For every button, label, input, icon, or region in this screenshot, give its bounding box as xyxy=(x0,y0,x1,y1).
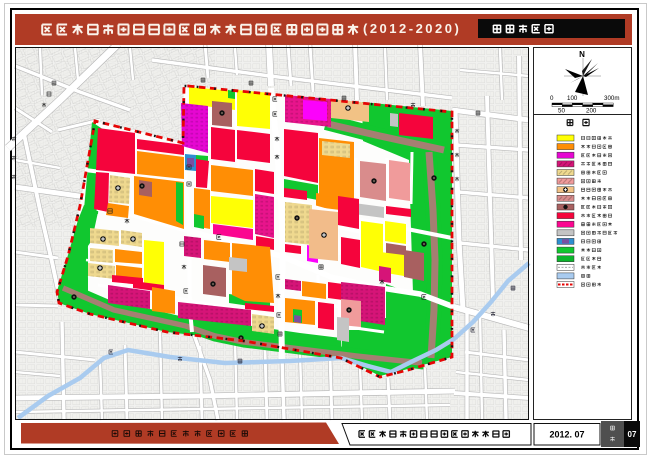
svg-text:07: 07 xyxy=(628,430,637,439)
svg-text:2012. 07: 2012. 07 xyxy=(549,430,584,440)
